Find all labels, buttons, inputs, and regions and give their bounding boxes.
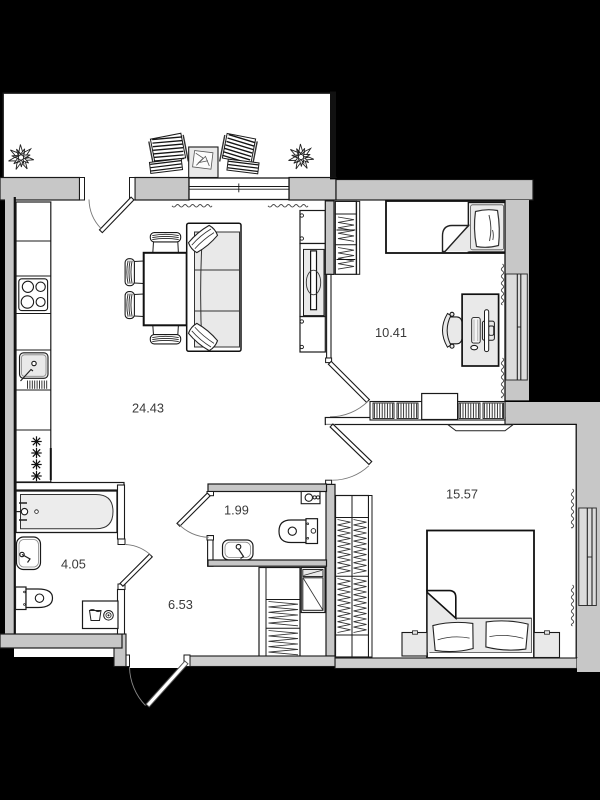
svg-text:15.57: 15.57 [446, 487, 478, 502]
svg-text:6.53: 6.53 [168, 597, 193, 612]
svg-text:24.43: 24.43 [132, 401, 164, 416]
svg-text:1.99: 1.99 [224, 503, 249, 518]
svg-text:10.41: 10.41 [375, 325, 407, 340]
svg-text:4.05: 4.05 [61, 557, 86, 572]
